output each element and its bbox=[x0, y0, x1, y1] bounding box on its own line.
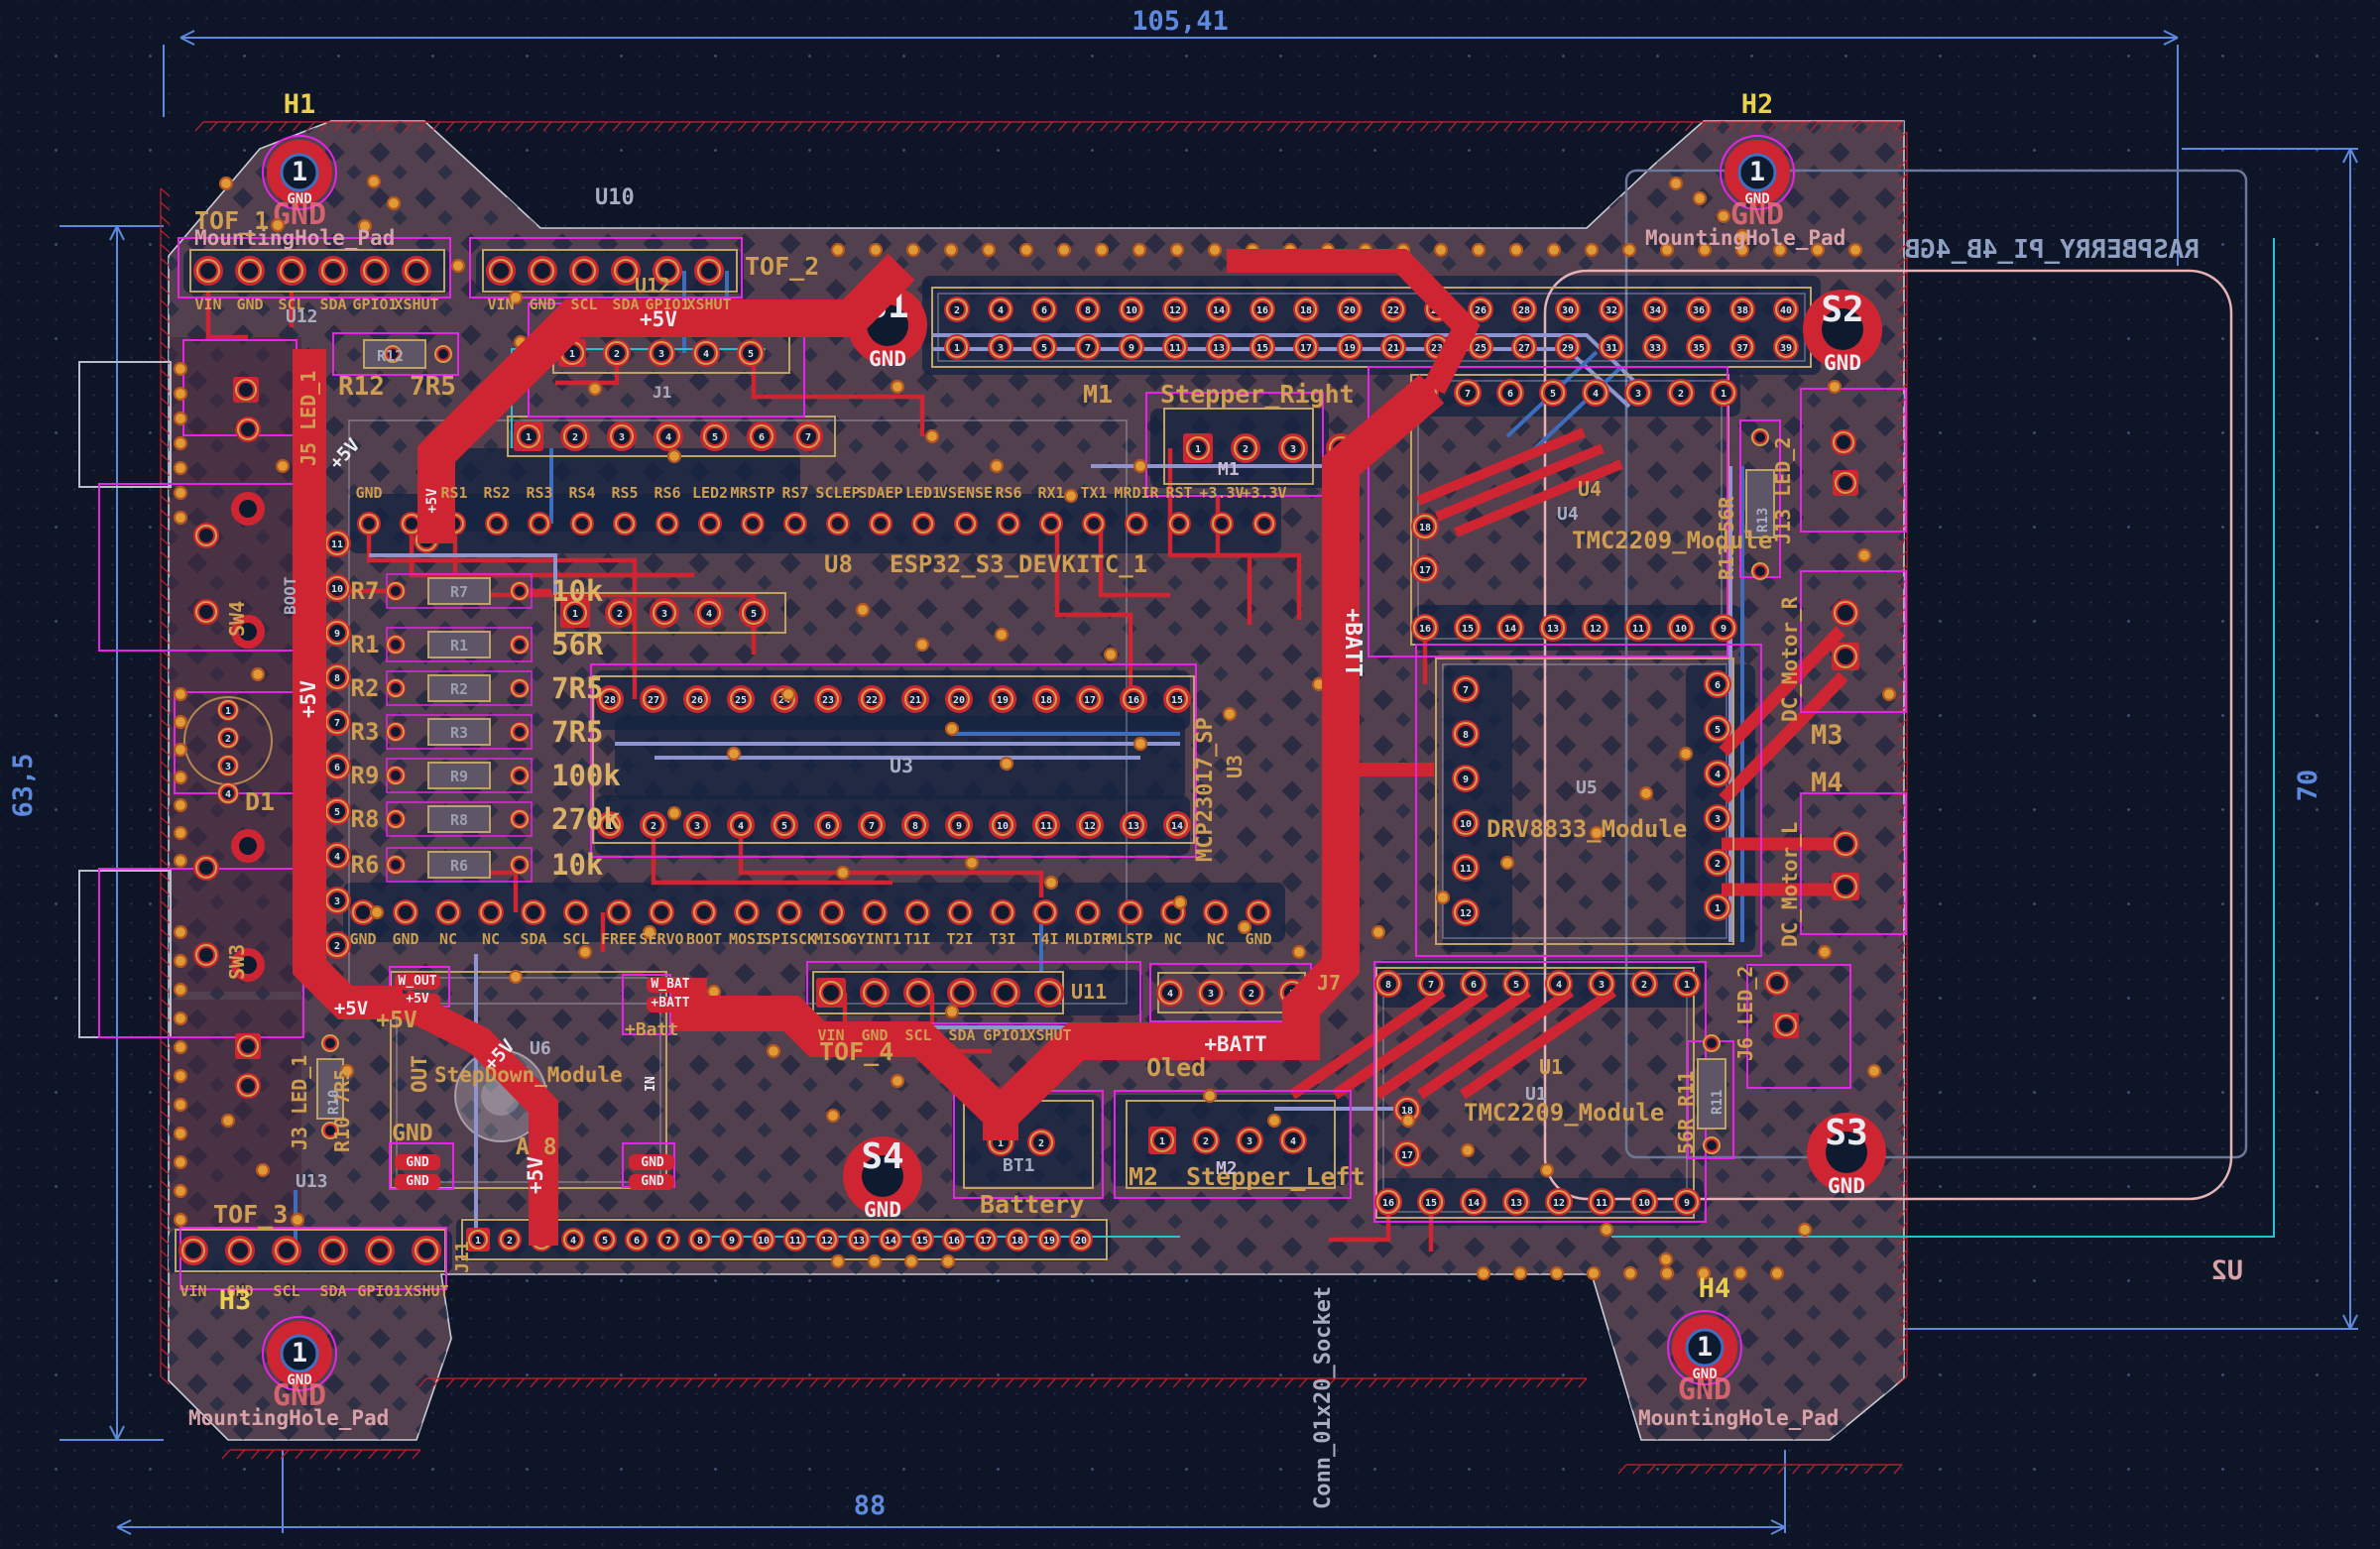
pad[interactable]: 2 bbox=[323, 931, 351, 959]
pad[interactable]: 1 bbox=[1673, 970, 1701, 998]
via[interactable] bbox=[175, 827, 186, 839]
pad[interactable]: 22 bbox=[858, 685, 886, 713]
via[interactable] bbox=[768, 1045, 779, 1057]
via[interactable] bbox=[1510, 244, 1522, 256]
pad[interactable]: 3 bbox=[1588, 970, 1615, 998]
via[interactable] bbox=[946, 723, 958, 735]
pad[interactable] bbox=[510, 809, 530, 829]
pad[interactable]: 9 bbox=[1119, 334, 1144, 360]
via[interactable] bbox=[1045, 877, 1057, 889]
pad[interactable]: 15 bbox=[1454, 614, 1482, 642]
pad[interactable]: 21 bbox=[901, 685, 929, 713]
via[interactable] bbox=[277, 460, 289, 472]
pad[interactable]: 9 bbox=[1673, 1188, 1701, 1216]
pad[interactable]: 1 bbox=[944, 334, 970, 360]
pad[interactable] bbox=[1832, 599, 1859, 627]
via[interactable] bbox=[1372, 926, 1384, 938]
via[interactable] bbox=[1204, 1090, 1216, 1102]
pad[interactable] bbox=[235, 1073, 261, 1099]
via[interactable] bbox=[252, 668, 264, 680]
pad[interactable] bbox=[1833, 470, 1858, 496]
pad[interactable] bbox=[1075, 899, 1101, 925]
pad[interactable]: 17 bbox=[1393, 1140, 1421, 1168]
pad[interactable]: 8 bbox=[1374, 970, 1402, 998]
via[interactable] bbox=[1514, 1267, 1526, 1279]
pad[interactable] bbox=[233, 377, 259, 403]
pad[interactable] bbox=[178, 1236, 208, 1265]
pad[interactable]: 9 bbox=[1452, 765, 1480, 792]
pad[interactable]: 7 bbox=[323, 708, 351, 736]
via[interactable] bbox=[175, 984, 186, 996]
via[interactable] bbox=[175, 363, 186, 375]
via[interactable] bbox=[175, 462, 186, 474]
via[interactable] bbox=[257, 1164, 269, 1176]
pad[interactable]: 12 bbox=[1162, 297, 1188, 322]
pad[interactable] bbox=[235, 1033, 261, 1059]
pad[interactable]: 7 bbox=[656, 1228, 680, 1251]
via[interactable] bbox=[175, 772, 186, 783]
pad[interactable]: 10 bbox=[323, 574, 351, 602]
pad[interactable]: 17 bbox=[1411, 555, 1439, 583]
pad[interactable] bbox=[954, 512, 978, 536]
pad[interactable]: 2 bbox=[1192, 1127, 1220, 1154]
pad[interactable]: 14 bbox=[1496, 614, 1524, 642]
via[interactable] bbox=[1473, 244, 1485, 256]
pad[interactable]: 19 bbox=[1337, 334, 1363, 360]
via[interactable] bbox=[983, 244, 995, 256]
pad[interactable]: 2 bbox=[1027, 1129, 1055, 1156]
pad[interactable]: 4 bbox=[727, 811, 755, 839]
via[interactable] bbox=[668, 807, 680, 819]
via[interactable] bbox=[1694, 192, 1706, 204]
pad[interactable]: 32 bbox=[1599, 297, 1624, 322]
pad[interactable]: 20 bbox=[1337, 297, 1363, 322]
pad[interactable]: 39 bbox=[1773, 334, 1799, 360]
pad[interactable] bbox=[903, 978, 933, 1008]
pad[interactable]: 4 bbox=[1582, 379, 1609, 407]
pad[interactable] bbox=[1751, 428, 1769, 446]
pad[interactable] bbox=[193, 942, 219, 968]
pad[interactable]: 10 bbox=[1667, 614, 1695, 642]
via[interactable] bbox=[1623, 244, 1635, 256]
via[interactable] bbox=[728, 748, 740, 760]
via[interactable] bbox=[1661, 1267, 1673, 1279]
pad[interactable]: 9 bbox=[945, 811, 973, 839]
pad[interactable]: 16 bbox=[1411, 614, 1439, 642]
via[interactable] bbox=[1588, 1267, 1600, 1279]
pad[interactable] bbox=[1751, 562, 1769, 580]
pad[interactable]: 30 bbox=[1555, 297, 1581, 322]
via[interactable] bbox=[589, 383, 601, 395]
via[interactable] bbox=[1624, 1267, 1636, 1279]
via[interactable] bbox=[1402, 1115, 1414, 1127]
pad[interactable]: 5 bbox=[700, 421, 730, 451]
pad[interactable] bbox=[1832, 643, 1859, 670]
via[interactable] bbox=[388, 197, 400, 209]
pad[interactable] bbox=[402, 256, 431, 286]
via[interactable] bbox=[220, 178, 232, 189]
pad[interactable]: 3 bbox=[1236, 1127, 1263, 1154]
pad[interactable]: 14 bbox=[879, 1228, 902, 1251]
via[interactable] bbox=[1799, 1224, 1811, 1236]
pad[interactable]: 4 bbox=[217, 782, 239, 804]
via[interactable] bbox=[1174, 896, 1186, 908]
pad[interactable]: 9 bbox=[720, 1228, 744, 1251]
pad[interactable]: 29 bbox=[1555, 334, 1581, 360]
pad[interactable]: 3 bbox=[1197, 979, 1225, 1007]
pad[interactable]: 15 bbox=[1163, 685, 1191, 713]
pad[interactable] bbox=[510, 855, 530, 875]
pad[interactable]: 3 bbox=[1704, 804, 1731, 832]
pad[interactable] bbox=[357, 512, 381, 536]
pad[interactable]: 16 bbox=[942, 1228, 966, 1251]
pad[interactable]: 11 bbox=[1452, 854, 1480, 882]
pad[interactable] bbox=[510, 766, 530, 785]
pad[interactable] bbox=[1703, 1136, 1721, 1154]
pad[interactable] bbox=[816, 978, 846, 1008]
via[interactable] bbox=[175, 1156, 186, 1168]
pad[interactable]: 6 bbox=[747, 421, 776, 451]
via[interactable] bbox=[1586, 244, 1598, 256]
via[interactable] bbox=[1134, 460, 1146, 472]
via[interactable] bbox=[1478, 1267, 1489, 1279]
via[interactable] bbox=[916, 639, 928, 651]
pad[interactable] bbox=[434, 345, 452, 363]
via[interactable] bbox=[175, 744, 186, 756]
pad[interactable] bbox=[826, 512, 850, 536]
pad[interactable]: 15 bbox=[1417, 1188, 1445, 1216]
via[interactable] bbox=[175, 413, 186, 424]
pad[interactable]: 4 bbox=[988, 297, 1013, 322]
pad[interactable] bbox=[613, 512, 637, 536]
button-leg[interactable] bbox=[231, 829, 265, 863]
pad[interactable]: 7 bbox=[1454, 379, 1482, 407]
pad[interactable]: 17 bbox=[1076, 685, 1104, 713]
pad[interactable]: 4 bbox=[1545, 970, 1573, 998]
via[interactable] bbox=[1541, 1164, 1553, 1176]
pad[interactable] bbox=[386, 722, 406, 742]
via[interactable] bbox=[1601, 1224, 1612, 1236]
pad[interactable]: 4 bbox=[561, 1228, 585, 1251]
pad[interactable] bbox=[869, 512, 892, 536]
pad[interactable]: 12 bbox=[1452, 898, 1480, 926]
via[interactable] bbox=[175, 437, 186, 449]
pad[interactable]: 1 bbox=[217, 699, 239, 721]
via[interactable] bbox=[175, 1099, 186, 1111]
pad[interactable]: 5 bbox=[739, 598, 769, 628]
via[interactable] bbox=[1462, 1144, 1474, 1156]
pad[interactable]: 6 bbox=[814, 811, 842, 839]
via[interactable] bbox=[1660, 1253, 1672, 1265]
via[interactable] bbox=[1268, 1115, 1280, 1127]
via[interactable] bbox=[1551, 1267, 1563, 1279]
pad[interactable]: 14 bbox=[1460, 1188, 1487, 1216]
pad[interactable]: 16 bbox=[1120, 685, 1147, 713]
pad[interactable] bbox=[1703, 1034, 1721, 1052]
pad[interactable]: 11 bbox=[783, 1228, 807, 1251]
pad[interactable]: 4 bbox=[654, 421, 683, 451]
via[interactable] bbox=[175, 512, 186, 524]
via[interactable] bbox=[1670, 178, 1682, 189]
pad[interactable]: 14 bbox=[1163, 811, 1191, 839]
pad[interactable]: 19 bbox=[989, 685, 1016, 713]
via[interactable] bbox=[1868, 1065, 1880, 1077]
pad[interactable]: 38 bbox=[1729, 297, 1755, 322]
via[interactable] bbox=[966, 857, 978, 869]
via[interactable] bbox=[1858, 549, 1870, 561]
pad[interactable] bbox=[1831, 429, 1856, 455]
pad[interactable] bbox=[1125, 512, 1148, 536]
pad[interactable] bbox=[318, 256, 348, 286]
via[interactable] bbox=[1849, 244, 1861, 256]
via[interactable] bbox=[1209, 244, 1221, 256]
pad[interactable] bbox=[510, 722, 530, 742]
via[interactable] bbox=[175, 926, 186, 938]
via[interactable] bbox=[945, 244, 957, 256]
via[interactable] bbox=[832, 244, 844, 256]
pad[interactable]: 2 bbox=[498, 1228, 522, 1251]
via[interactable] bbox=[222, 1115, 234, 1127]
pad[interactable]: 8 bbox=[1452, 720, 1480, 748]
via[interactable] bbox=[869, 1255, 881, 1267]
pad[interactable] bbox=[360, 256, 390, 286]
pad[interactable]: 2 bbox=[1630, 970, 1658, 998]
via[interactable] bbox=[175, 716, 186, 728]
via[interactable] bbox=[175, 1013, 186, 1024]
pad[interactable]: 7 bbox=[858, 811, 886, 839]
pad[interactable] bbox=[655, 512, 679, 536]
via[interactable] bbox=[1680, 748, 1692, 760]
pad[interactable]: 6 bbox=[1460, 970, 1487, 998]
pad[interactable]: 15 bbox=[1249, 334, 1275, 360]
pad[interactable]: 12 bbox=[1582, 614, 1609, 642]
via[interactable] bbox=[1819, 946, 1831, 958]
pad[interactable]: 16 bbox=[1374, 1188, 1402, 1216]
via[interactable] bbox=[946, 1006, 958, 1017]
pad[interactable]: 35 bbox=[1686, 334, 1712, 360]
pad[interactable] bbox=[393, 899, 418, 925]
via[interactable] bbox=[832, 1255, 844, 1267]
pad[interactable]: 10 bbox=[1119, 297, 1144, 322]
pad[interactable] bbox=[1832, 873, 1859, 900]
pad[interactable]: 14 bbox=[1206, 297, 1232, 322]
via[interactable] bbox=[1001, 758, 1012, 770]
pad[interactable]: 36 bbox=[1686, 297, 1712, 322]
pad[interactable]: 11 bbox=[1162, 334, 1188, 360]
pad[interactable]: 23 bbox=[814, 685, 842, 713]
via[interactable] bbox=[892, 1075, 903, 1087]
pad[interactable]: 13 bbox=[1539, 614, 1567, 642]
pad[interactable] bbox=[272, 1236, 301, 1265]
via[interactable] bbox=[837, 867, 849, 879]
pad[interactable] bbox=[1246, 899, 1271, 925]
pad[interactable] bbox=[649, 899, 674, 925]
via[interactable] bbox=[942, 1255, 954, 1267]
pad[interactable] bbox=[225, 1236, 255, 1265]
via[interactable] bbox=[782, 688, 794, 700]
pad[interactable] bbox=[435, 899, 461, 925]
via[interactable] bbox=[926, 430, 938, 442]
pad[interactable]: 10 bbox=[989, 811, 1016, 839]
pad[interactable] bbox=[318, 1236, 348, 1265]
pad[interactable]: 9 bbox=[323, 619, 351, 647]
pad[interactable] bbox=[235, 417, 261, 442]
pad[interactable]: 1 bbox=[1183, 433, 1213, 463]
pad[interactable] bbox=[734, 899, 760, 925]
pad[interactable]: 3 bbox=[988, 334, 1013, 360]
pad[interactable]: 5 bbox=[1704, 715, 1731, 743]
pad[interactable] bbox=[386, 678, 406, 698]
pad[interactable] bbox=[911, 512, 935, 536]
pad[interactable]: 2 bbox=[1238, 979, 1265, 1007]
via[interactable] bbox=[175, 955, 186, 967]
pad[interactable]: 34 bbox=[1642, 297, 1668, 322]
via[interactable] bbox=[175, 1185, 186, 1197]
pad[interactable] bbox=[510, 581, 530, 601]
pad[interactable] bbox=[193, 256, 223, 286]
via[interactable] bbox=[1771, 1267, 1783, 1279]
pad[interactable]: 2 bbox=[944, 297, 970, 322]
via[interactable] bbox=[175, 487, 186, 499]
via[interactable] bbox=[1734, 1267, 1746, 1279]
pad[interactable]: 40 bbox=[1773, 297, 1799, 322]
pad[interactable] bbox=[606, 899, 632, 925]
pad[interactable]: 3 bbox=[323, 887, 351, 914]
via[interactable] bbox=[175, 388, 186, 400]
pad[interactable] bbox=[1039, 512, 1063, 536]
pad[interactable] bbox=[1118, 899, 1143, 925]
pad[interactable] bbox=[235, 256, 265, 286]
via[interactable] bbox=[991, 460, 1003, 472]
pad[interactable]: 27 bbox=[1511, 334, 1537, 360]
pad[interactable] bbox=[694, 256, 724, 286]
pad[interactable]: 11 bbox=[1032, 811, 1060, 839]
pad[interactable] bbox=[776, 899, 802, 925]
via[interactable] bbox=[510, 971, 522, 983]
pad[interactable]: 3 bbox=[648, 339, 675, 367]
pad[interactable]: 5 bbox=[323, 797, 351, 825]
via[interactable] bbox=[1065, 490, 1077, 502]
via[interactable] bbox=[175, 1070, 186, 1082]
pad[interactable] bbox=[862, 899, 888, 925]
pad[interactable]: 17 bbox=[1293, 334, 1319, 360]
pad[interactable]: 31 bbox=[1599, 334, 1624, 360]
pad[interactable]: 7 bbox=[1452, 675, 1480, 703]
pad[interactable]: 3 bbox=[1624, 379, 1652, 407]
pad[interactable] bbox=[990, 899, 1015, 925]
pad[interactable] bbox=[947, 899, 973, 925]
pad[interactable]: 4 bbox=[1704, 760, 1731, 787]
pad[interactable] bbox=[277, 256, 306, 286]
pad[interactable]: 6 bbox=[1031, 297, 1057, 322]
pad[interactable] bbox=[563, 899, 589, 925]
pad[interactable]: 5 bbox=[1539, 379, 1567, 407]
pad[interactable] bbox=[485, 512, 509, 536]
pad[interactable] bbox=[1032, 899, 1058, 925]
pad[interactable]: 4 bbox=[1279, 1127, 1307, 1154]
pad[interactable]: 2 bbox=[1704, 849, 1731, 877]
pad[interactable]: 2 bbox=[217, 727, 239, 749]
via[interactable] bbox=[892, 381, 903, 393]
pad[interactable] bbox=[1252, 512, 1276, 536]
pad[interactable] bbox=[486, 256, 516, 286]
pad[interactable]: 5 bbox=[1031, 334, 1057, 360]
via[interactable] bbox=[1105, 649, 1117, 660]
pad[interactable] bbox=[570, 512, 594, 536]
pad[interactable]: 4 bbox=[1156, 979, 1184, 1007]
via[interactable] bbox=[857, 604, 869, 616]
pad[interactable] bbox=[569, 256, 599, 286]
pad[interactable] bbox=[1773, 1013, 1799, 1038]
pad[interactable]: 6 bbox=[1704, 670, 1731, 698]
pad[interactable]: 12 bbox=[1076, 811, 1104, 839]
pad[interactable] bbox=[510, 635, 530, 655]
pad[interactable]: 20 bbox=[1069, 1228, 1093, 1251]
via[interactable] bbox=[1134, 738, 1146, 750]
via[interactable] bbox=[175, 688, 186, 700]
pad[interactable]: 6 bbox=[625, 1228, 649, 1251]
pad[interactable] bbox=[386, 581, 406, 601]
pad[interactable]: 3 bbox=[650, 598, 679, 628]
pad[interactable]: 8 bbox=[901, 811, 929, 839]
pad[interactable] bbox=[783, 512, 807, 536]
pad[interactable] bbox=[997, 512, 1020, 536]
via[interactable] bbox=[1501, 857, 1513, 869]
pad[interactable] bbox=[478, 899, 504, 925]
via[interactable] bbox=[1171, 244, 1183, 256]
pad[interactable]: 3 bbox=[1278, 433, 1308, 463]
pad[interactable] bbox=[386, 635, 406, 655]
pad[interactable]: 37 bbox=[1729, 334, 1755, 360]
pad[interactable]: 13 bbox=[847, 1228, 871, 1251]
via[interactable] bbox=[1133, 244, 1145, 256]
pad[interactable] bbox=[528, 512, 551, 536]
pad[interactable] bbox=[1034, 978, 1064, 1008]
via[interactable] bbox=[1718, 210, 1729, 222]
pad[interactable]: 13 bbox=[1120, 811, 1147, 839]
button-leg[interactable] bbox=[231, 492, 265, 526]
via[interactable] bbox=[1437, 892, 1449, 903]
pad[interactable]: 7 bbox=[793, 421, 823, 451]
pad[interactable]: 19 bbox=[1037, 1228, 1061, 1251]
pad[interactable]: 1 bbox=[1148, 1127, 1176, 1154]
pad[interactable]: 6 bbox=[323, 753, 351, 780]
pad[interactable]: 2 bbox=[640, 811, 667, 839]
via[interactable] bbox=[175, 1128, 186, 1139]
pad[interactable] bbox=[819, 899, 845, 925]
pad[interactable]: 5 bbox=[593, 1228, 617, 1251]
pad[interactable]: 8 bbox=[688, 1228, 712, 1251]
pad[interactable] bbox=[193, 855, 219, 881]
via[interactable] bbox=[175, 1041, 186, 1053]
pad[interactable]: 10 bbox=[752, 1228, 775, 1251]
pad[interactable] bbox=[1832, 830, 1859, 858]
via[interactable] bbox=[827, 1110, 839, 1122]
pad[interactable]: 12 bbox=[1545, 1188, 1573, 1216]
pad[interactable] bbox=[1764, 970, 1790, 996]
pad[interactable]: 13 bbox=[1206, 334, 1232, 360]
pad[interactable] bbox=[528, 256, 557, 286]
pad[interactable]: 7 bbox=[1075, 334, 1101, 360]
via[interactable] bbox=[1058, 244, 1070, 256]
pad[interactable] bbox=[691, 899, 717, 925]
via[interactable] bbox=[368, 176, 380, 187]
pad[interactable]: 21 bbox=[1380, 334, 1406, 360]
via[interactable] bbox=[175, 799, 186, 811]
pad[interactable]: 4 bbox=[323, 842, 351, 870]
pad[interactable] bbox=[193, 599, 219, 625]
pad[interactable]: 7 bbox=[1417, 970, 1445, 998]
